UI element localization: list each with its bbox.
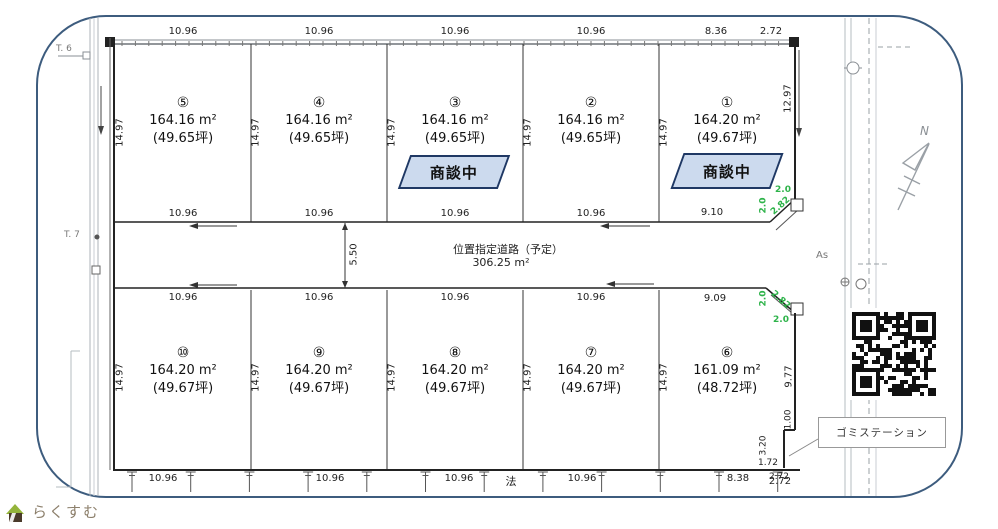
corner-bot-a: 2.0 [768,315,794,326]
status-badge-plot-3-label: 商談中 [430,162,478,183]
dim-roadu-4: 10.96 [561,208,621,219]
plot-9-tsubo: (49.67坪) [257,380,381,398]
plot-3-tsubo: (49.65坪) [393,130,517,148]
plot-3-number: ③ [393,94,517,112]
plot-1-area: 164.20 m² [665,112,789,130]
plot-1: ① 164.20 m² (49.67坪) [665,94,789,148]
plot-1-number: ① [665,94,789,112]
dim-roadl-2: 10.96 [289,292,349,303]
plot-7: ⑦ 164.20 m² (49.67坪) [529,344,653,398]
plot-8-area: 164.20 m² [393,362,517,380]
plot-5-tsubo: (49.65坪) [121,130,245,148]
dim-roadl-3: 10.96 [425,292,485,303]
dim-top-5: 8.36 [694,26,738,37]
dim-roadu-2: 10.96 [289,208,349,219]
status-badge-plot-3: 商談中 [398,155,510,189]
dim-roadu-5: 9.10 [682,207,742,218]
plot-4: ④ 164.16 m² (49.65坪) [257,94,381,148]
logo-house-spacer [6,502,28,522]
dim-top-4: 10.96 [561,26,621,37]
dim-roadu-3: 10.96 [425,208,485,219]
dim-roadl-1: 10.96 [153,292,213,303]
dim-bot-3: 10.96 [429,473,489,484]
plot-4-number: ④ [257,94,381,112]
corner-bot-b: 2.0 [759,286,770,312]
site-plan-canvas: 10.96 10.96 10.96 10.96 8.36 2.72 14.97 … [0,0,998,529]
plot-4-tsubo: (49.65坪) [257,130,381,148]
dim-roadl-4: 10.96 [561,292,621,303]
boundary-note: 法 [498,476,524,487]
plot-3-area: 164.16 m² [393,112,517,130]
dim-notch-c: 1.72 [748,458,788,469]
plot-2: ② 164.16 m² (49.65坪) [529,94,653,148]
dim-top-3: 10.96 [425,26,485,37]
dim-top-1: 10.96 [153,26,213,37]
plot-7-tsubo: (49.67坪) [529,380,653,398]
plot-6: ⑥ 161.09 m² (48.72坪) [665,344,789,398]
dim-bot-1: 10.96 [133,473,193,484]
road-surface-label: As [816,250,828,261]
plot-9-number: ⑨ [257,344,381,362]
plot-3: ③ 164.16 m² (49.65坪) [393,94,517,148]
garbage-station-text: ゴミステーション [836,425,928,440]
dim-notch-a: 1.00 [784,400,795,440]
dim-bot-4: 10.96 [552,473,612,484]
plot-6-area: 161.09 m² [665,362,789,380]
plot-8-tsubo: (49.67坪) [393,380,517,398]
plot-9-area: 164.20 m² [257,362,381,380]
garbage-station-label: ゴミステーション [818,417,946,448]
plot-4-area: 164.16 m² [257,112,381,130]
plot-10: ⑩ 164.20 m² (49.67坪) [121,344,245,398]
dim-bot-6: 2.72 [758,476,802,487]
plot-7-number: ⑦ [529,344,653,362]
plot-5: ⑤ 164.16 m² (49.65坪) [121,94,245,148]
corner-top-a: 2.0 [770,185,796,196]
road-width-label: 5.50 [349,235,360,275]
logo-text: らくすむ [32,501,100,522]
dim-roadu-1: 10.96 [153,208,213,219]
plot-6-number: ⑥ [665,344,789,362]
benchmark-t6: T. 6 [56,44,72,54]
plot-1-tsubo: (49.67坪) [665,130,789,148]
dim-top-6: 2.72 [749,26,793,37]
plot-10-tsubo: (49.67坪) [121,380,245,398]
plot-9: ⑨ 164.20 m² (49.67坪) [257,344,381,398]
plot-2-number: ② [529,94,653,112]
status-badge-plot-1-label: 商談中 [703,161,751,182]
plot-8: ⑧ 164.20 m² (49.67坪) [393,344,517,398]
plot-2-area: 164.16 m² [529,112,653,130]
plot-5-area: 164.16 m² [121,112,245,130]
benchmark-t7: T. 7 [64,230,80,240]
dim-top-2: 10.96 [289,26,349,37]
road-name: 位置指定道路（予定） [418,241,598,257]
plot-10-number: ⑩ [121,344,245,362]
plot-2-tsubo: (49.65坪) [529,130,653,148]
site-logo: らくすむ [6,501,100,522]
road-area: 306.25 m² [418,256,584,269]
dim-bot-2: 10.96 [300,473,360,484]
plot-5-number: ⑤ [121,94,245,112]
plot-10-area: 164.20 m² [121,362,245,380]
status-badge-plot-1: 商談中 [670,153,783,189]
plot-7-area: 164.20 m² [529,362,653,380]
dim-roadl-5: 9.09 [685,293,745,304]
plot-8-number: ⑧ [393,344,517,362]
compass-n-label: N [920,124,929,138]
plot-6-tsubo: (48.72坪) [665,380,789,398]
